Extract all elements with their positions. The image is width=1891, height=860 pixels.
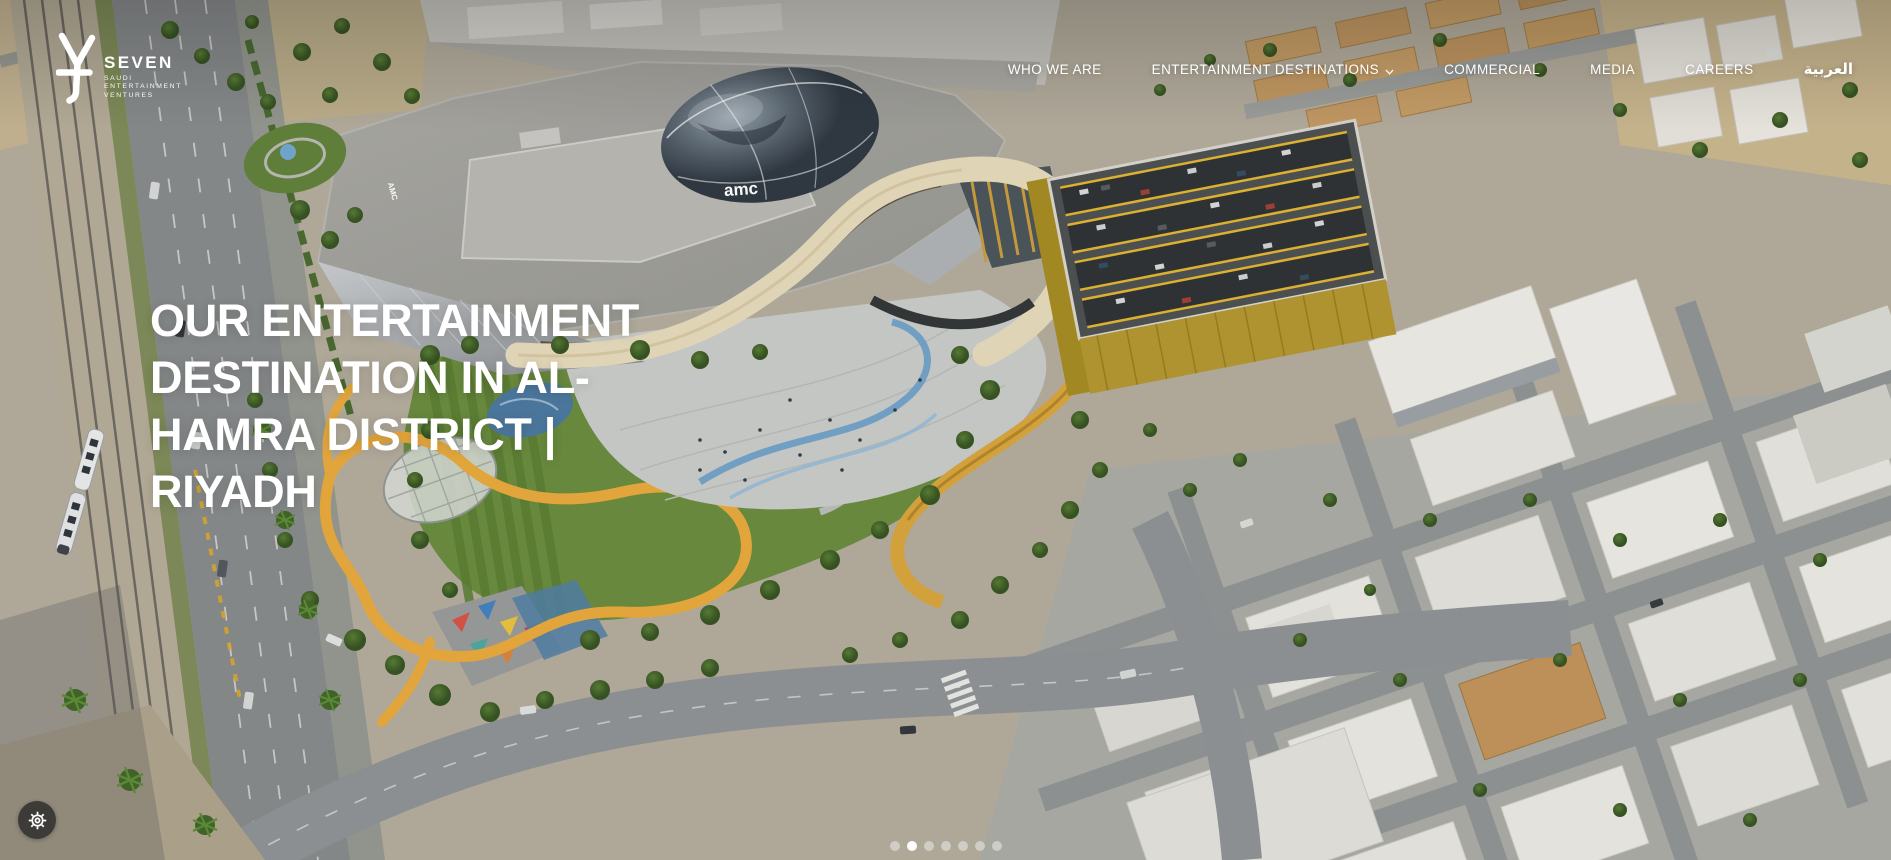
landing-page: amc AMC	[0, 0, 1891, 860]
nav-item-careers[interactable]: CAREERS	[1685, 62, 1753, 77]
nav-item-media[interactable]: MEDIA	[1590, 62, 1635, 77]
brand-tagline: SAUDI ENTERTAINMENT VENTURES	[104, 75, 182, 100]
carousel-dot-4[interactable]	[941, 841, 951, 851]
carousel-dot-5[interactable]	[958, 841, 968, 851]
carousel-dot-6[interactable]	[975, 841, 985, 851]
brand-name: SEVEN	[104, 54, 182, 71]
carousel-dot-3[interactable]	[924, 841, 934, 851]
nav-item-who-we-are[interactable]: WHO WE ARE	[1008, 62, 1102, 77]
gear-icon	[27, 810, 48, 831]
chevron-down-icon	[1385, 63, 1394, 78]
brand-logo[interactable]: SEVEN SAUDI ENTERTAINMENT VENTURES	[56, 30, 182, 104]
main-nav: WHO WE ARE ENTERTAINMENT DESTINATIONS CO…	[1008, 60, 1853, 78]
hero-heading: OUR ENTERTAINMENT DESTINATION IN AL- HAM…	[150, 292, 639, 520]
nav-item-arabic-language[interactable]: العربية	[1804, 60, 1853, 78]
carousel-dot-2[interactable]	[907, 841, 917, 851]
carousel-dot-7[interactable]	[992, 841, 1002, 851]
seven-logo-mark-icon	[56, 32, 96, 104]
brand-wordmark: SEVEN SAUDI ENTERTAINMENT VENTURES	[104, 54, 182, 100]
nav-item-commercial[interactable]: COMMERCIAL	[1444, 62, 1540, 77]
carousel-dots	[890, 841, 1002, 851]
carousel-dot-1[interactable]	[890, 841, 900, 851]
accessibility-settings-button[interactable]	[18, 801, 56, 839]
nav-item-entertainment-destinations[interactable]: ENTERTAINMENT DESTINATIONS	[1152, 61, 1394, 78]
